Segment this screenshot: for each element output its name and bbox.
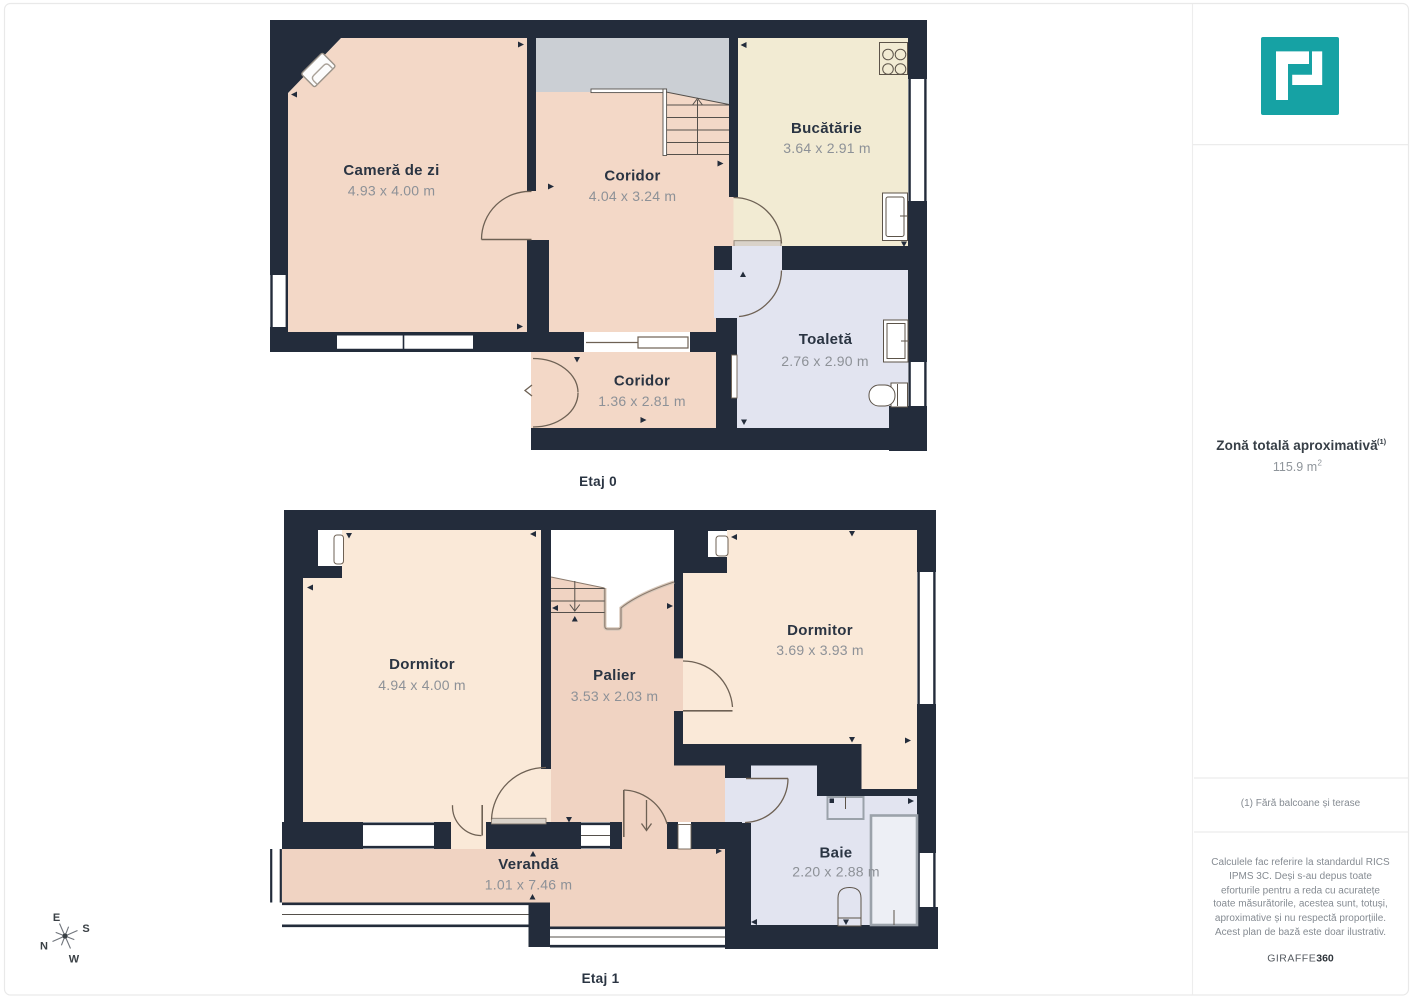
svg-text:Toaletă: Toaletă [799,331,853,348]
svg-text:3.69 x 3.93 m: 3.69 x 3.93 m [776,642,863,658]
svg-text:Palier: Palier [593,667,636,684]
svg-text:GIRAFFE360: GIRAFFE360 [1267,953,1334,965]
svg-text:Verandă: Verandă [498,856,559,873]
svg-text:Zonă totală aproximativă: Zonă totală aproximativă [1216,438,1378,453]
svg-text:2: 2 [1318,459,1323,468]
svg-text:4.94 x 4.00 m: 4.94 x 4.00 m [378,677,465,693]
svg-text:(1) Fără balcoane și terase: (1) Fără balcoane și terase [1241,798,1361,809]
svg-text:Cameră de zi: Cameră de zi [343,162,439,179]
svg-text:Baie: Baie [820,845,853,862]
svg-text:Dormitor: Dormitor [787,622,853,639]
svg-text:Etaj 0: Etaj 0 [579,474,617,489]
svg-text:toate măsurătorile, acestea su: toate măsurătorile, acestea sunt, totuși… [1213,899,1388,910]
svg-text:115.9 m: 115.9 m [1273,460,1317,474]
svg-text:4.04 x 3.24 m: 4.04 x 3.24 m [589,188,676,204]
svg-text:IPMS 3C. Deși s-au depus toate: IPMS 3C. Deși s-au depus toate [1229,871,1372,882]
svg-text:E: E [53,912,60,924]
svg-text:Coridor: Coridor [614,373,670,390]
svg-text:3.64 x 2.91 m: 3.64 x 2.91 m [783,140,870,156]
svg-text:N: N [40,941,48,953]
svg-text:1.01 x 7.46 m: 1.01 x 7.46 m [485,877,572,893]
svg-text:Acest plan de bază este doar i: Acest plan de bază este doar ilustrativ. [1215,927,1386,938]
svg-text:eforturile pentru a reda cu ac: eforturile pentru a reda cu acuratețe [1221,886,1380,897]
svg-text:2.76 x 2.90 m: 2.76 x 2.90 m [781,353,868,369]
svg-text:3.53 x 2.03 m: 3.53 x 2.03 m [571,688,658,704]
svg-text:aproximative și nu respectă pr: aproximative și nu respectă proporțiile. [1215,913,1386,924]
svg-text:W: W [69,954,80,966]
svg-text:(1): (1) [1377,437,1387,446]
svg-text:S: S [82,923,89,935]
svg-text:Calculele fac referire la stan: Calculele fac referire la standardul RIC… [1211,857,1390,868]
svg-text:Etaj 1: Etaj 1 [582,971,620,986]
svg-text:Bucătărie: Bucătărie [791,120,862,137]
svg-text:2.20 x 2.88 m: 2.20 x 2.88 m [792,864,879,880]
svg-text:Dormitor: Dormitor [389,656,455,673]
svg-text:4.93 x 4.00 m: 4.93 x 4.00 m [348,183,435,199]
svg-text:1.36 x 2.81 m: 1.36 x 2.81 m [598,393,685,409]
svg-text:Coridor: Coridor [604,168,660,185]
